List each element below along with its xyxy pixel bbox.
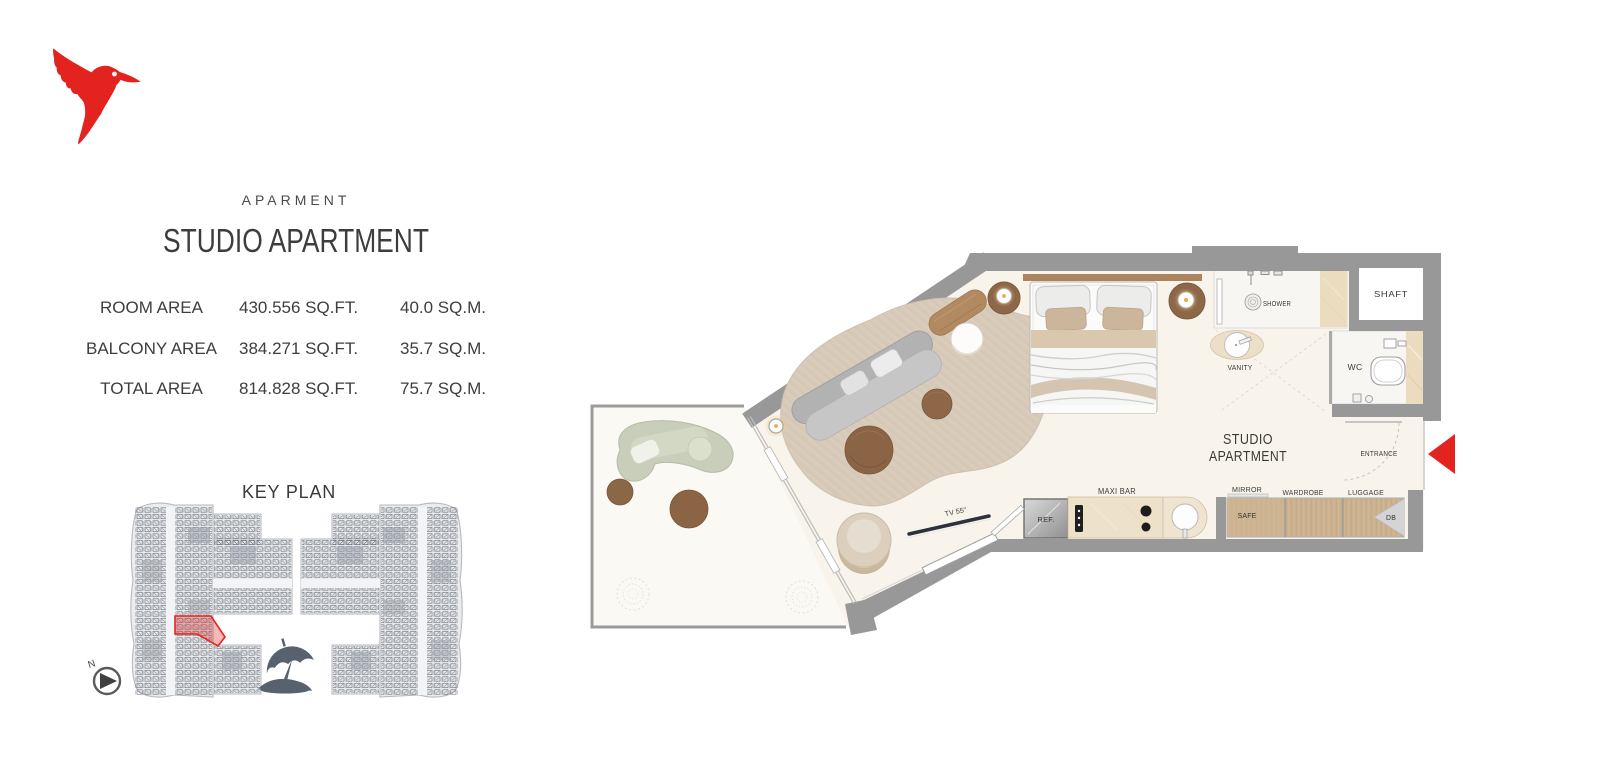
svg-text:APARTMENT: APARTMENT [1209, 448, 1287, 465]
svg-text:ENTRANCE: ENTRANCE [1361, 449, 1398, 458]
svg-text:MAXI BAR: MAXI BAR [1098, 487, 1136, 496]
svg-text:LUGGAGE: LUGGAGE [1348, 488, 1384, 497]
svg-text:DB: DB [1386, 515, 1396, 522]
svg-text:VANITY: VANITY [1228, 363, 1253, 372]
svg-text:REF.: REF. [1038, 517, 1055, 524]
svg-text:N: N [87, 658, 97, 671]
svg-text:SHOWER: SHOWER [1263, 299, 1291, 308]
svg-text:WC: WC [1348, 363, 1363, 372]
svg-text:SAFE: SAFE [1238, 513, 1257, 520]
svg-text:STUDIO: STUDIO [1223, 431, 1273, 448]
svg-text:MIRROR: MIRROR [1232, 485, 1262, 494]
svg-text:SHAFT: SHAFT [1374, 290, 1408, 299]
svg-text:WARDROBE: WARDROBE [1283, 488, 1324, 497]
